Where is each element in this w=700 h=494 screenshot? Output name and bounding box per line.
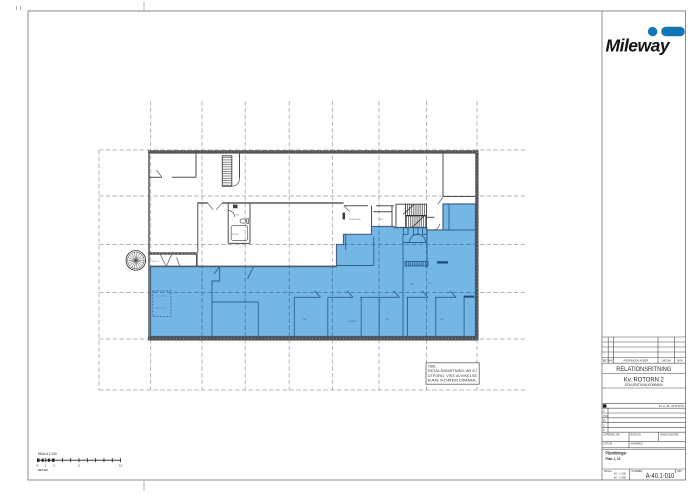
svg-text:Tel. vx. 08 - 00 00 00 00: Tel. vx. 08 - 00 00 00 00 bbox=[658, 405, 684, 408]
svg-text:NUMMER: NUMMER bbox=[632, 470, 643, 473]
svg-text:SIGN: SIGN bbox=[677, 358, 683, 362]
svg-text:A-40.1-010: A-40.1-010 bbox=[646, 471, 675, 480]
svg-text:RELATIONSRITNING: RELATIONSRITNING bbox=[616, 366, 671, 373]
svg-text:10: 10 bbox=[119, 463, 123, 467]
svg-text:ELC: ELC bbox=[428, 283, 432, 285]
svg-text:DATUM: DATUM bbox=[662, 358, 671, 362]
svg-text:KONTOR: KONTOR bbox=[348, 321, 357, 323]
svg-text:9.6173: 9.6173 bbox=[232, 234, 239, 236]
svg-text:Planritningar: Planritningar bbox=[606, 451, 627, 456]
svg-text:Plan 1, 10: Plan 1, 10 bbox=[606, 456, 622, 461]
svg-text:1011: 1011 bbox=[303, 319, 307, 321]
svg-text:KAN FÖREKOMMA.: KAN FÖREKOMMA. bbox=[428, 379, 478, 383]
svg-text:40 - 1:100: 40 - 1:100 bbox=[614, 472, 627, 476]
svg-text:RITAD AV: RITAD AV bbox=[631, 434, 642, 437]
svg-text:40 - 1:400: 40 - 1:400 bbox=[614, 475, 627, 479]
svg-text:DETALJINMÄTNING ÄR EJ: DETALJINMÄTNING ÄR EJ bbox=[428, 369, 478, 373]
svg-text:1015: 1015 bbox=[440, 319, 444, 321]
svg-text:Mileway: Mileway bbox=[606, 35, 671, 55]
svg-text:ÄNDRINGEN AVSER: ÄNDRINGEN AVSER bbox=[623, 358, 648, 362]
svg-text:PERSONAL: PERSONAL bbox=[349, 218, 362, 221]
svg-text:SKALA 1:100: SKALA 1:100 bbox=[38, 452, 57, 456]
svg-text:OBS.: OBS. bbox=[428, 364, 437, 368]
svg-text:UPPDRAG.NR: UPPDRAG.NR bbox=[604, 434, 620, 437]
svg-text:DATUM: DATUM bbox=[604, 442, 612, 445]
svg-text:SOLLENTUNA KOMMUN: SOLLENTUNA KOMMUN bbox=[625, 383, 664, 387]
svg-text:BET: BET bbox=[678, 470, 683, 473]
svg-text:WC: WC bbox=[236, 215, 240, 217]
svg-text:ANSVARIG: ANSVARIG bbox=[631, 442, 643, 445]
svg-text:VVS: VVS bbox=[603, 415, 608, 418]
svg-text:METER: METER bbox=[38, 468, 48, 472]
svg-text:1017: 1017 bbox=[410, 284, 414, 286]
svg-text:SKALA: SKALA bbox=[604, 470, 612, 473]
svg-text:ANT: ANT bbox=[608, 358, 614, 362]
svg-text:UTFÖRD, VISS AVVIKELSE: UTFÖRD, VISS AVVIKELSE bbox=[428, 374, 478, 378]
svg-text:HANDLÄGGARE: HANDLÄGGARE bbox=[660, 434, 679, 437]
svg-text:1013: 1013 bbox=[385, 319, 389, 321]
svg-text:VIND 01: VIND 01 bbox=[152, 261, 159, 263]
